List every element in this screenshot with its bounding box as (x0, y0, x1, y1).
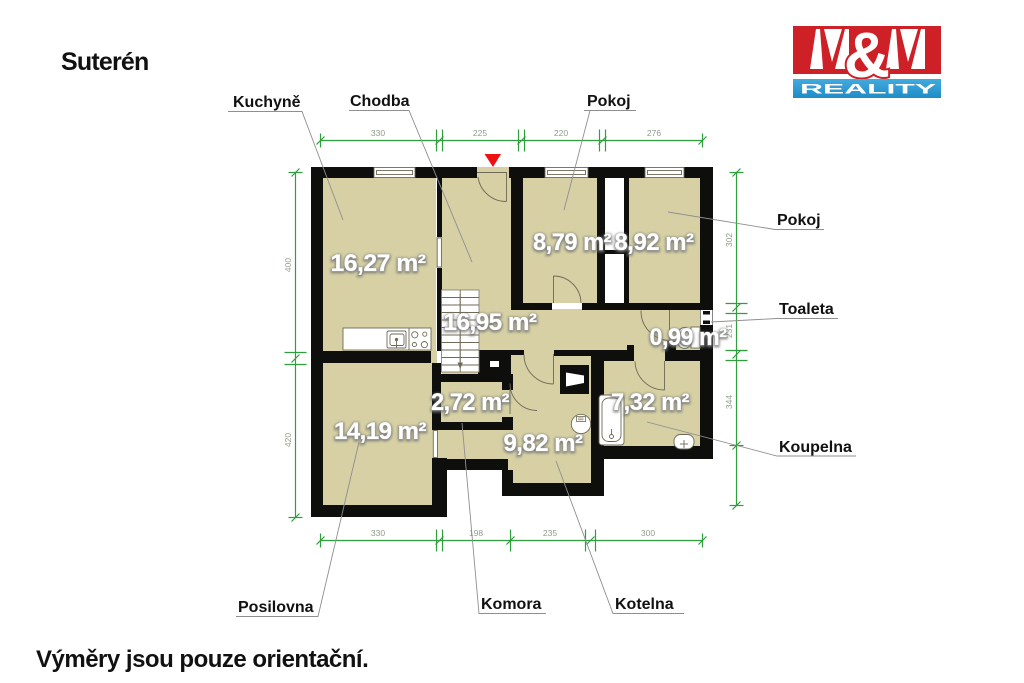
svg-text:235: 235 (543, 528, 557, 538)
svg-text:2,72 m²: 2,72 m² (431, 389, 509, 416)
svg-text:16,27 m²: 16,27 m² (331, 250, 427, 277)
svg-text:0,99 m²: 0,99 m² (650, 324, 727, 351)
svg-text:7,32 m²: 7,32 m² (611, 389, 689, 416)
svg-text:Kotelna: Kotelna (615, 596, 674, 613)
svg-text:Koupelna: Koupelna (779, 439, 852, 456)
svg-text:Toaleta: Toaleta (779, 301, 834, 318)
svg-text:300: 300 (641, 528, 655, 538)
svg-text:420: 420 (283, 433, 293, 447)
svg-text:276: 276 (647, 128, 661, 138)
svg-text:Komora: Komora (481, 596, 542, 613)
svg-text:Chodba: Chodba (350, 93, 410, 110)
svg-text:Posilovna: Posilovna (238, 599, 314, 616)
svg-text:REALITY: REALITY (800, 82, 936, 97)
svg-text:344: 344 (724, 395, 734, 409)
svg-text:8,92 m²: 8,92 m² (615, 229, 694, 256)
svg-text:8,79 m²: 8,79 m² (533, 229, 611, 256)
svg-text:Suterén: Suterén (61, 48, 148, 76)
svg-text:Výměry jsou pouze orientační.: Výměry jsou pouze orientační. (36, 646, 368, 673)
svg-text:Kuchyně: Kuchyně (233, 94, 301, 111)
svg-text:330: 330 (371, 528, 385, 538)
svg-text:14,19 m²: 14,19 m² (334, 418, 427, 445)
svg-text:16,95 m²: 16,95 m² (444, 309, 538, 336)
svg-text:225: 225 (473, 128, 487, 138)
svg-text:302: 302 (724, 233, 734, 247)
svg-text:9,82 m²: 9,82 m² (504, 430, 583, 457)
svg-text:400: 400 (283, 258, 293, 272)
svg-text:330: 330 (371, 128, 385, 138)
svg-text:Pokoj: Pokoj (587, 93, 631, 110)
svg-text:220: 220 (554, 128, 568, 138)
svg-text:Pokoj: Pokoj (777, 212, 821, 229)
